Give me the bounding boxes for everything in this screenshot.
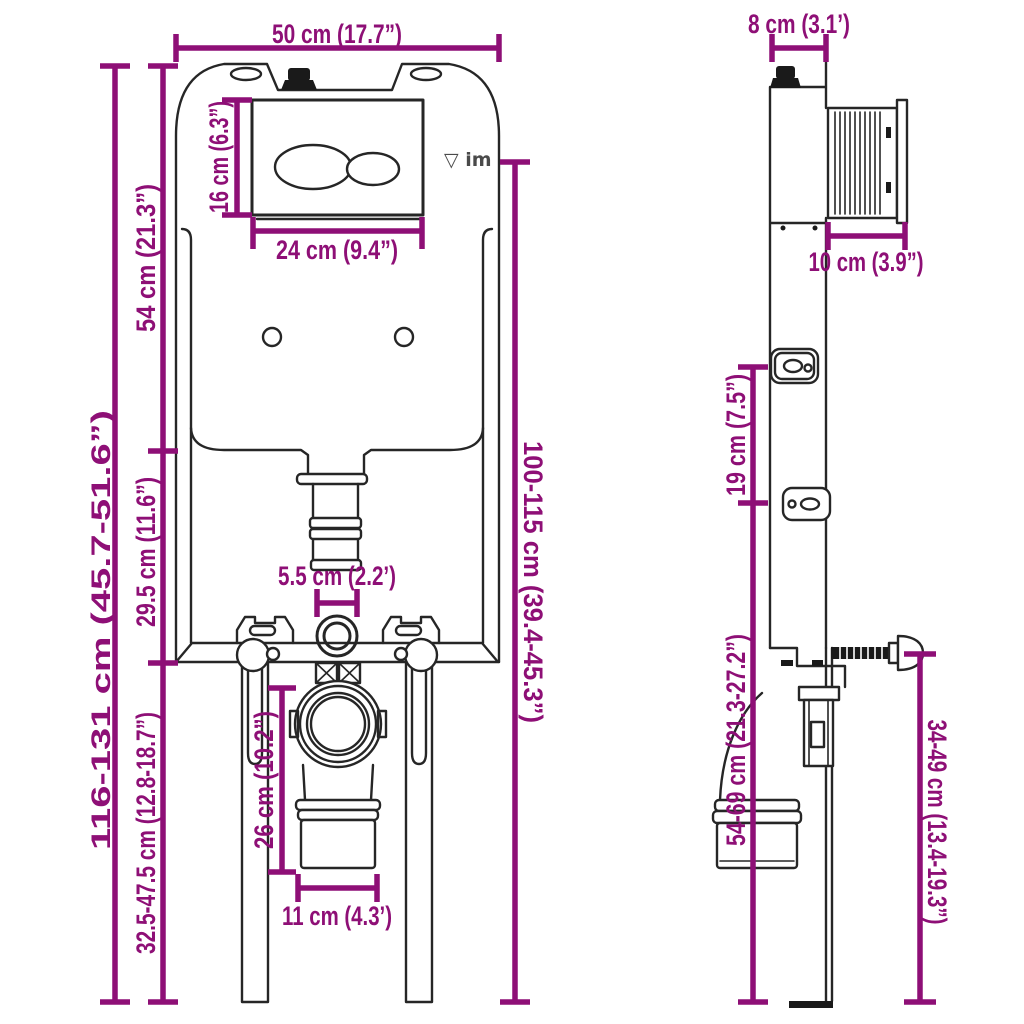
front-tank-hole-left [263,328,281,346]
dim-side-depth-label: 8 cm (3.1’) [748,9,850,39]
front-outlet-pipe [301,820,375,868]
flush-button-small [347,153,399,185]
side-wall-bracket-upper [771,349,818,383]
front-flush-pipe-ring-2 [310,529,361,539]
front-tank-bottom-right [364,428,483,474]
dim-front-inlet-width-label: 5.5 cm (2.2’) [278,561,396,591]
dim-front-outlet-width-label: 11 cm (4.3’) [282,901,392,931]
side-frame-dot-2 [813,226,818,231]
dim-side-outlet-height-label: 54-69 cm (21.3-27.2”) [721,634,751,846]
front-filler-cap-icon [281,68,317,90]
front-inlet-connector [317,616,357,656]
front-drain-elbow [290,681,386,868]
dim-front-plate-height-label: 16 cm (6.3”) [204,101,234,213]
front-bracket-left [237,617,293,643]
front-tab-slot-left [231,68,261,80]
dim-front-width-label: 50 cm (17.7”) [272,19,402,49]
brand-logo: ▽ im [444,149,492,171]
diagram-canvas: ▽ im [0,0,1024,1024]
front-bottom-rail [176,643,499,662]
dim-side-anchor-height-label: 34-49 cm (13.4-19.3”) [922,720,952,925]
dim-side-bracket-gap-label: 19 cm (7.5”) [721,374,751,496]
side-filler-cap-icon [770,66,801,88]
front-tab-slot-right [411,68,441,80]
dim-front-total-height-label: 116-131 cm (45.7-51.6”) [86,410,116,850]
side-frame-dot-1 [781,226,786,231]
front-bracket-right [383,617,439,643]
front-foot-knob-right [405,639,437,671]
dim-front-frame-height-label: 100-115 cm (39.4-45.3”) [518,441,548,723]
dim-front-plate-width-label: 24 cm (9.4”) [276,235,398,265]
flush-plate [252,100,423,219]
front-inner-rail-left [182,229,191,643]
front-tank-hole-right [395,328,413,346]
front-tank-bottom-left [191,428,308,474]
dim-front-leg-height-label: 32.5-47.5 cm (12.8-18.7”) [131,712,161,954]
front-foot-pin-left [267,648,279,660]
side-foot-base [789,1001,833,1008]
dim-front-mid-height-label: 29.5 cm (11.6”) [131,477,161,627]
dim-side-box-depth-label: 10 cm (3.9”) [809,247,924,277]
screenshot-root: ▽ im [0,0,1024,1024]
front-foot-knob-left [237,639,269,671]
side-seal-left [781,660,793,666]
front-flush-pipe-collar [297,474,367,484]
front-flush-pipe-ring-1 [310,518,361,528]
flush-button-large [275,145,351,189]
dimension-labels: 50 cm (17.7”) 116-131 cm (45.7-51.6”) 54… [86,9,952,954]
front-leg-right [406,662,432,1002]
dim-front-upper-height-label: 54 cm (21.3”) [131,184,161,332]
front-foot-pin-right [395,648,407,660]
side-cistern-box [828,100,907,223]
front-inner-rail-right [483,229,492,643]
side-seal-right [812,660,823,666]
side-view [713,62,923,1008]
dim-front-outlet-drop-label: 26 cm (10.2”) [249,711,279,849]
side-wall-bracket-lower [783,488,830,520]
